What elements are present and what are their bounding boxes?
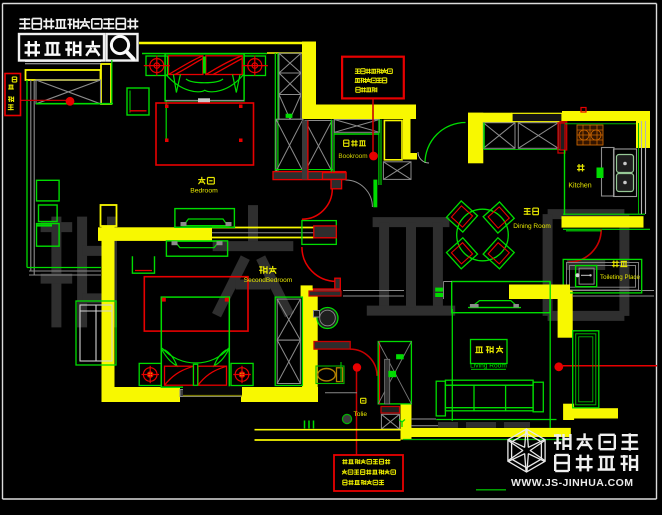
svg-text:Kitchen: Kitchen — [568, 183, 591, 190]
svg-text:Bookroom: Bookroom — [338, 153, 367, 160]
svg-text:WWW.JS-JINHUA.COM: WWW.JS-JINHUA.COM — [511, 477, 634, 489]
svg-text:Dining Room: Dining Room — [513, 223, 551, 230]
svg-text:Tolie: Tolie — [354, 411, 368, 418]
svg-text:Bedroom: Bedroom — [190, 188, 218, 195]
svg-text:SecondBedroom: SecondBedroom — [244, 277, 292, 284]
svg-text:Living Room: Living Room — [470, 363, 507, 370]
svg-text:Toileting Place: Toileting Place — [600, 274, 640, 281]
